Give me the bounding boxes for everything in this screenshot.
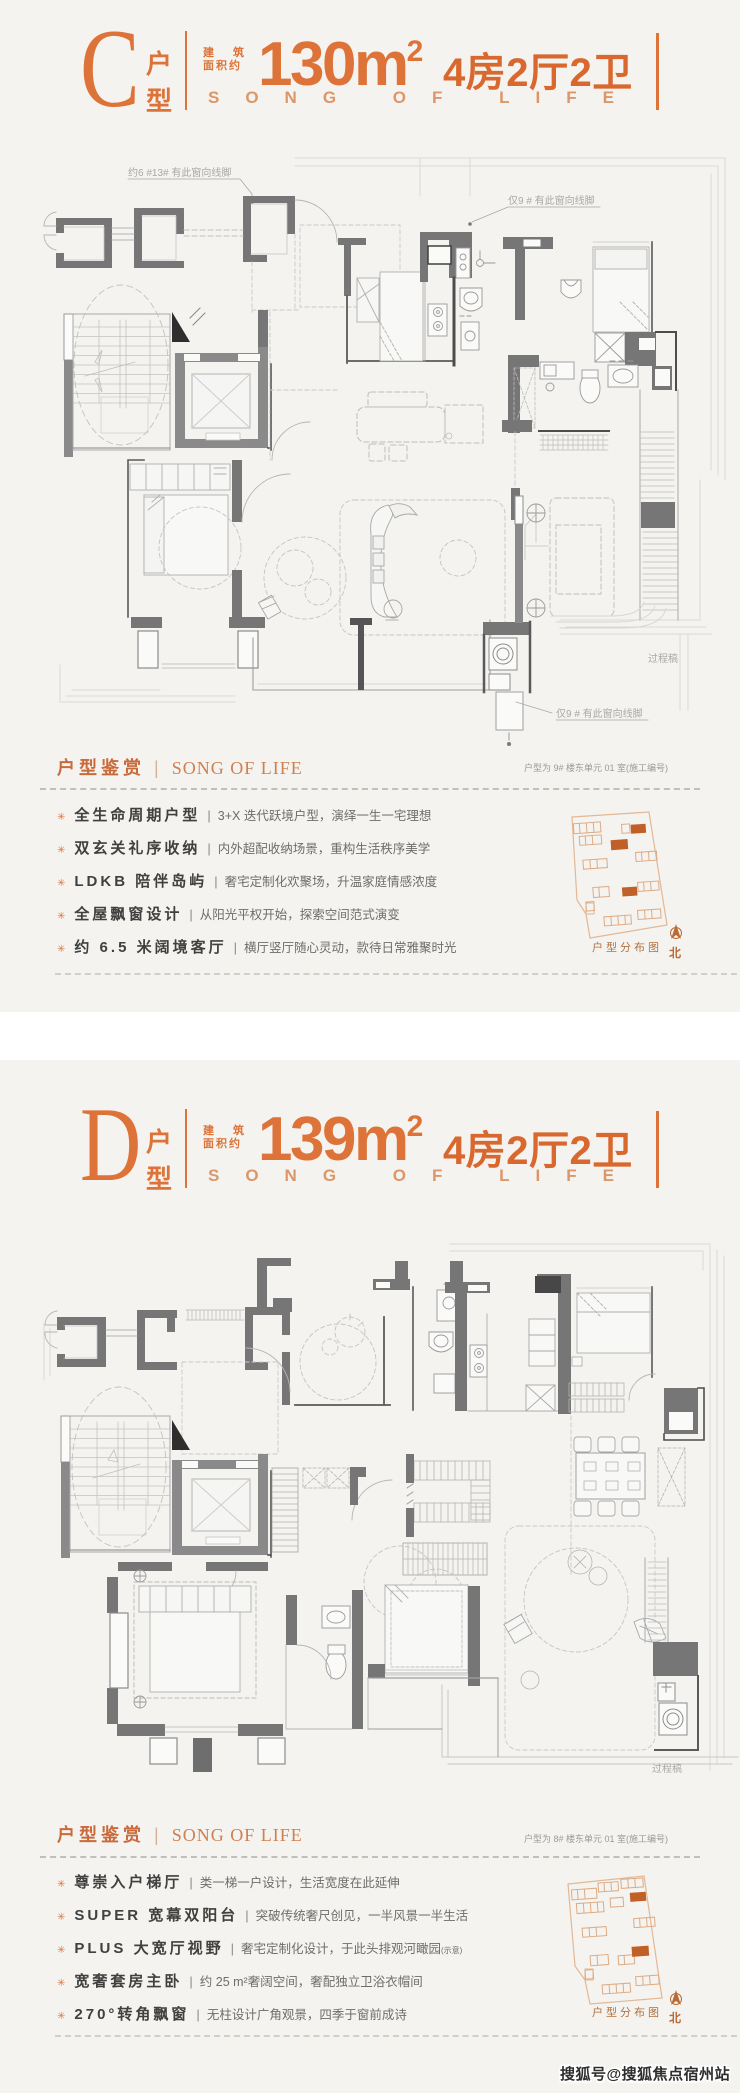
svg-text:过程稿: 过程稿 xyxy=(648,652,678,665)
svg-text:约6 #13# 有此窗向线脚: 约6 #13# 有此窗向线脚 xyxy=(128,166,231,179)
svg-text:北: 北 xyxy=(669,2010,681,2025)
svg-text:仅9 # 有此窗向线脚: 仅9 # 有此窗向线脚 xyxy=(556,707,643,720)
svg-text:北: 北 xyxy=(669,945,681,960)
svg-text:仅9 # 有此窗向线脚: 仅9 # 有此窗向线脚 xyxy=(508,194,595,207)
svg-text:过程稿: 过程稿 xyxy=(652,1762,682,1775)
